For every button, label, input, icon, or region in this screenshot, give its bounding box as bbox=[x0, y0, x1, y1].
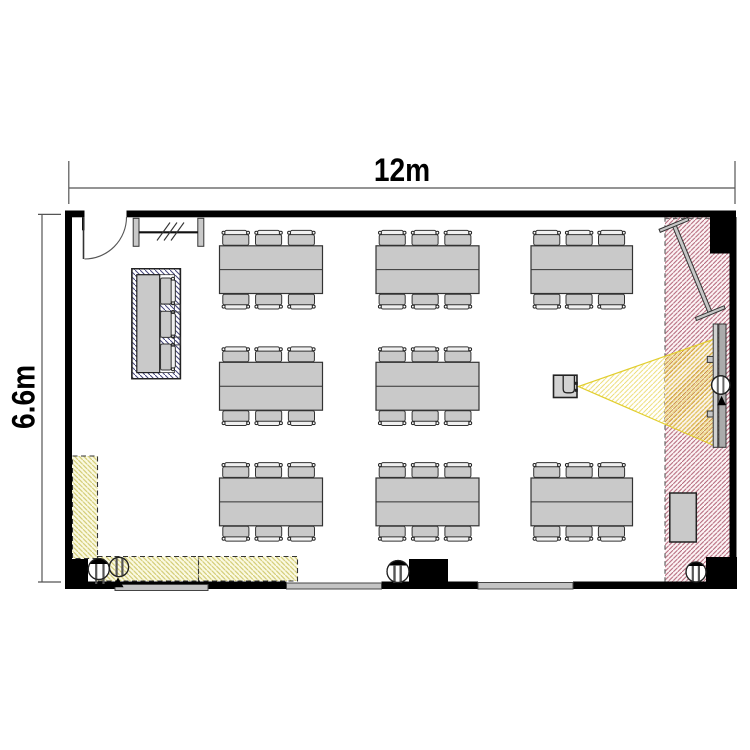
svg-text:12m: 12m bbox=[374, 153, 430, 188]
svg-text:6.6m: 6.6m bbox=[7, 365, 42, 429]
